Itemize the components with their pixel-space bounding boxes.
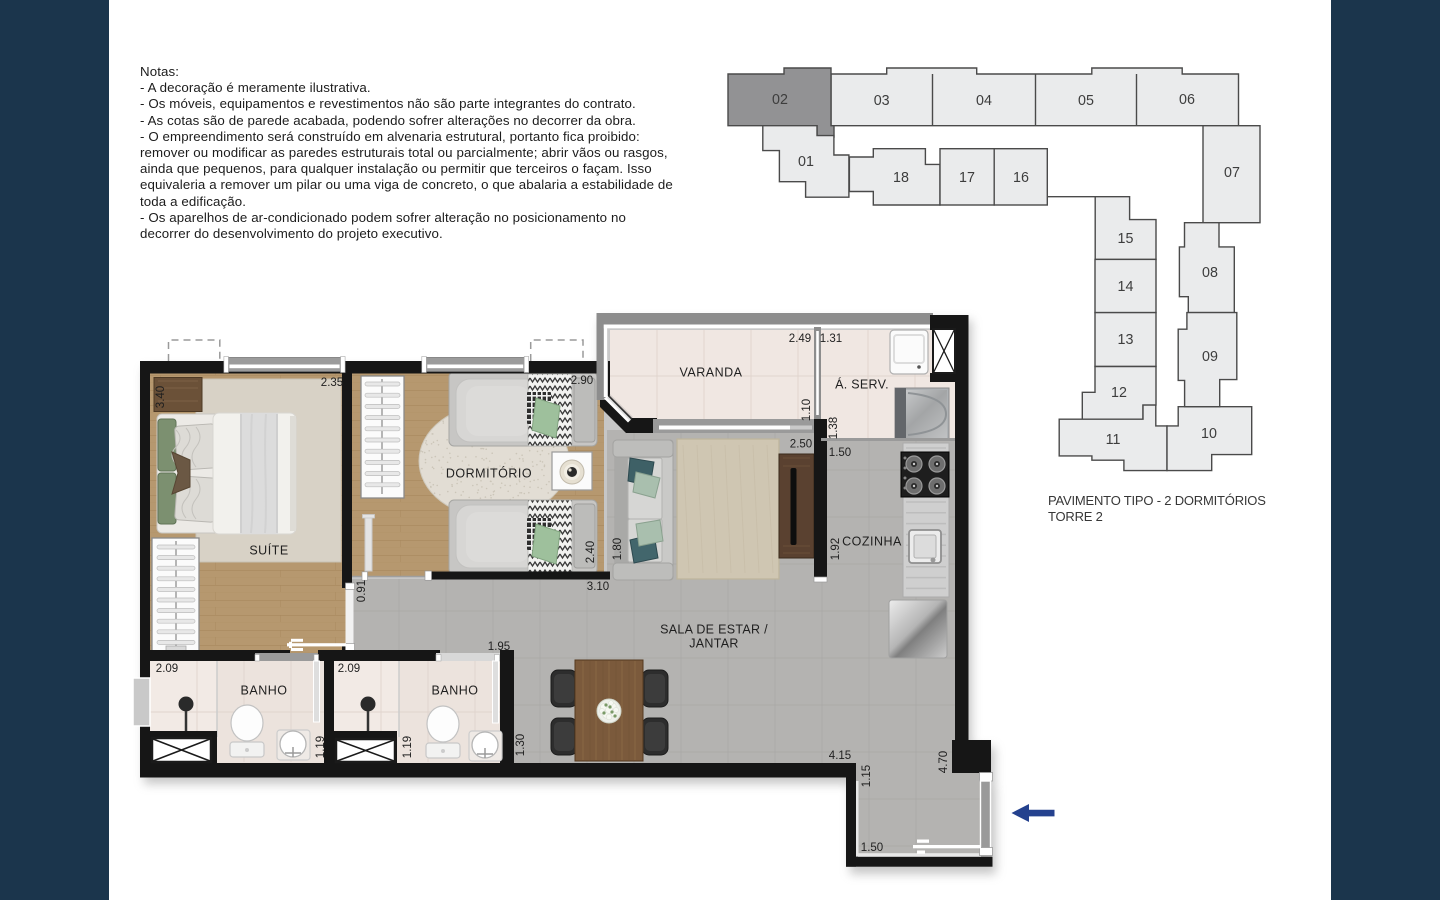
svg-text:DORMITÓRIO: DORMITÓRIO: [446, 465, 532, 480]
svg-text:1.80: 1.80: [612, 538, 624, 560]
svg-text:JANTAR: JANTAR: [689, 636, 739, 650]
svg-text:1.15: 1.15: [861, 765, 873, 787]
svg-text:01: 01: [798, 154, 814, 170]
svg-text:1.31: 1.31: [820, 333, 842, 345]
svg-text:3.10: 3.10: [587, 581, 609, 593]
svg-text:10: 10: [1201, 426, 1217, 442]
svg-text:08: 08: [1202, 265, 1218, 281]
svg-text:1.50: 1.50: [861, 842, 883, 854]
svg-text:03: 03: [874, 93, 890, 109]
svg-text:2.50: 2.50: [790, 439, 812, 451]
svg-text:4.70: 4.70: [938, 751, 950, 773]
svg-text:12: 12: [1111, 385, 1127, 401]
svg-text:Á. SERV.: Á. SERV.: [835, 376, 889, 391]
svg-text:11: 11: [1106, 432, 1121, 448]
svg-text:3.40: 3.40: [155, 386, 167, 408]
svg-text:2.49: 2.49: [789, 333, 811, 345]
svg-text:0.91: 0.91: [356, 580, 368, 602]
svg-text:02: 02: [772, 92, 788, 108]
svg-text:1.19: 1.19: [315, 736, 327, 758]
svg-text:VARANDA: VARANDA: [679, 365, 742, 379]
svg-text:1.10: 1.10: [801, 399, 813, 421]
svg-text:1.30: 1.30: [515, 734, 527, 756]
svg-text:1.38: 1.38: [828, 417, 840, 439]
svg-text:2.90: 2.90: [571, 375, 593, 387]
svg-text:BANHO: BANHO: [432, 683, 479, 697]
svg-text:2.09: 2.09: [338, 663, 360, 675]
svg-text:SUÍTE: SUÍTE: [249, 542, 288, 557]
svg-text:1.19: 1.19: [402, 736, 414, 758]
svg-text:18: 18: [893, 170, 909, 186]
svg-text:4.15: 4.15: [829, 750, 851, 762]
svg-text:16: 16: [1013, 170, 1029, 186]
svg-text:14: 14: [1118, 279, 1134, 295]
svg-text:07: 07: [1224, 165, 1240, 181]
svg-text:BANHO: BANHO: [241, 683, 288, 697]
svg-text:SALA DE ESTAR /: SALA DE ESTAR /: [660, 622, 768, 636]
svg-text:1.92: 1.92: [830, 538, 842, 560]
svg-text:1.50: 1.50: [829, 447, 851, 459]
svg-text:COZINHA: COZINHA: [842, 534, 902, 548]
svg-text:17: 17: [959, 170, 975, 186]
svg-text:06: 06: [1179, 92, 1195, 108]
svg-text:2.40: 2.40: [585, 541, 597, 563]
svg-text:05: 05: [1078, 93, 1094, 109]
svg-text:2.09: 2.09: [156, 663, 178, 675]
svg-text:09: 09: [1202, 349, 1218, 365]
svg-text:2.35: 2.35: [321, 377, 343, 389]
svg-text:04: 04: [976, 93, 992, 109]
svg-text:1.95: 1.95: [488, 641, 510, 653]
svg-text:13: 13: [1118, 332, 1134, 348]
svg-text:15: 15: [1118, 231, 1134, 247]
